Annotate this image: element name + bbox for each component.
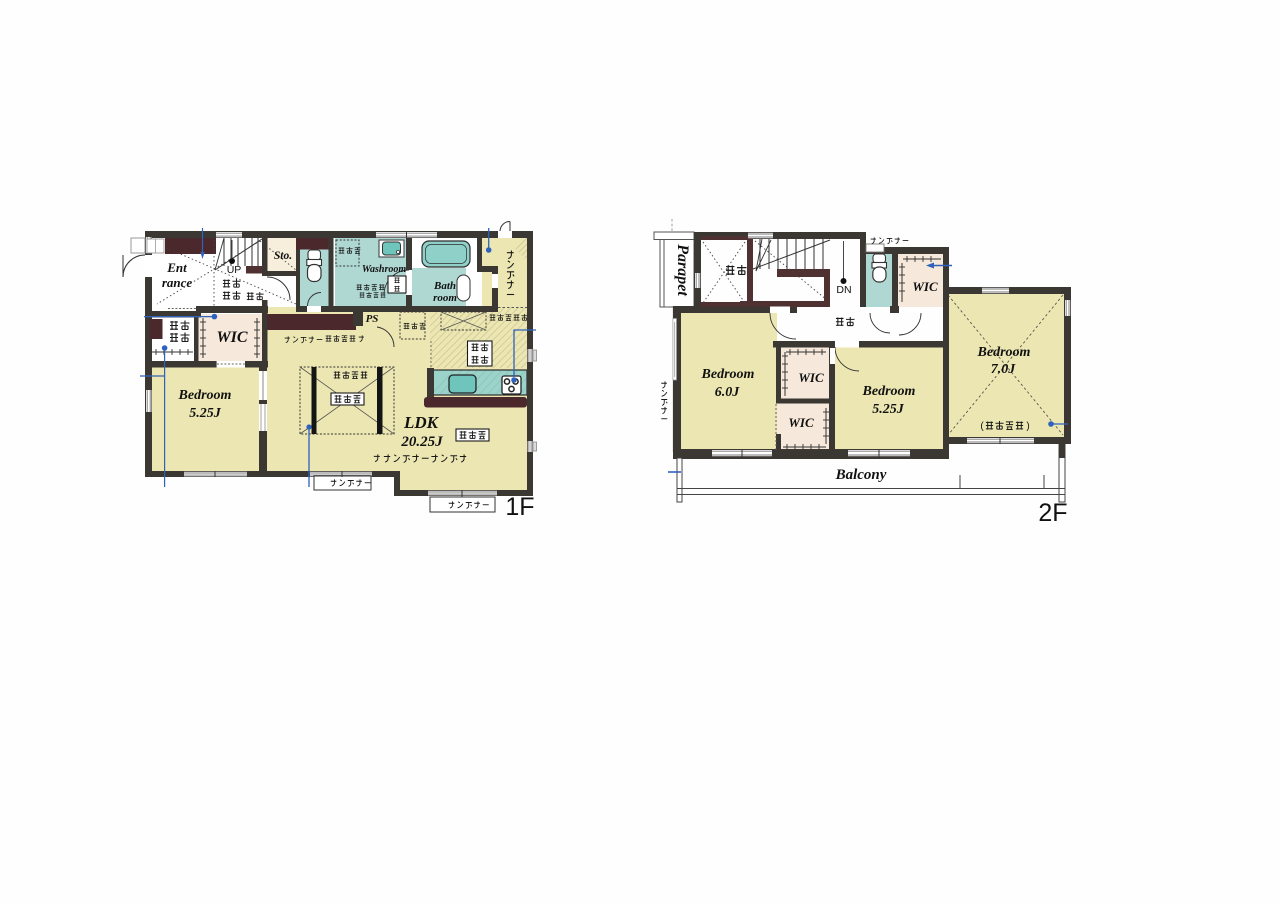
- svg-text:rance: rance: [162, 275, 193, 290]
- svg-text:Bedroom: Bedroom: [977, 345, 1031, 360]
- svg-text:20.25J: 20.25J: [400, 434, 443, 450]
- svg-text:PS: PS: [366, 313, 379, 325]
- svg-text:7.0J: 7.0J: [991, 362, 1017, 377]
- svg-text:2F: 2F: [1038, 499, 1067, 527]
- svg-text:DN: DN: [836, 284, 851, 296]
- svg-text:UP: UP: [227, 264, 242, 276]
- svg-text:5.25J: 5.25J: [872, 402, 905, 417]
- svg-text:6.0J: 6.0J: [715, 385, 741, 400]
- svg-text:Bedroom: Bedroom: [701, 367, 755, 382]
- svg-text:1F: 1F: [505, 493, 534, 521]
- svg-text:Washroom: Washroom: [362, 264, 406, 275]
- svg-text:Bath: Bath: [433, 280, 456, 292]
- svg-text:Balcony: Balcony: [835, 467, 887, 483]
- svg-text:Bedroom: Bedroom: [178, 388, 232, 403]
- svg-text:Parapet: Parapet: [674, 243, 691, 296]
- svg-text:WIC: WIC: [216, 329, 247, 346]
- svg-text:WIC: WIC: [798, 370, 824, 385]
- svg-text:Bedroom: Bedroom: [862, 384, 916, 399]
- svg-text:room: room: [433, 292, 457, 304]
- svg-text:Ent: Ent: [166, 260, 187, 275]
- svg-text:WIC: WIC: [788, 415, 814, 430]
- svg-text:WIC: WIC: [912, 279, 938, 294]
- svg-text:Sto.: Sto.: [274, 250, 292, 262]
- svg-text:LDK: LDK: [403, 413, 440, 432]
- svg-text:): ): [1026, 421, 1029, 432]
- svg-text:5.25J: 5.25J: [189, 406, 222, 421]
